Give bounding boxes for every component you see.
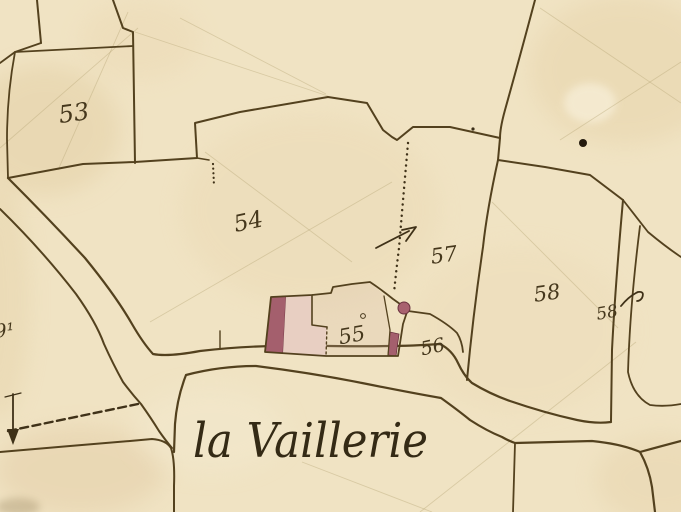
parcel-55-label: 55 — [337, 321, 367, 349]
ink-speck — [471, 127, 474, 130]
map-canvas: 53 54 55 56 57 58 58 9¹ la Vaillerie — [0, 0, 681, 512]
cadastral-map[interactable]: 53 54 55 56 57 58 58 9¹ la Vaillerie — [0, 0, 681, 512]
parcel-91-label: 9¹ — [0, 319, 15, 343]
building-round-tower — [398, 302, 410, 314]
parcel-53-label: 53 — [57, 97, 91, 129]
place-name-label: la Vaillerie — [193, 413, 428, 469]
parcel-58-label: 58 — [532, 279, 562, 306]
ink-blot — [579, 139, 587, 147]
parcel-57-label: 57 — [429, 241, 459, 269]
parcel-58bis-label: 58 — [595, 301, 620, 324]
